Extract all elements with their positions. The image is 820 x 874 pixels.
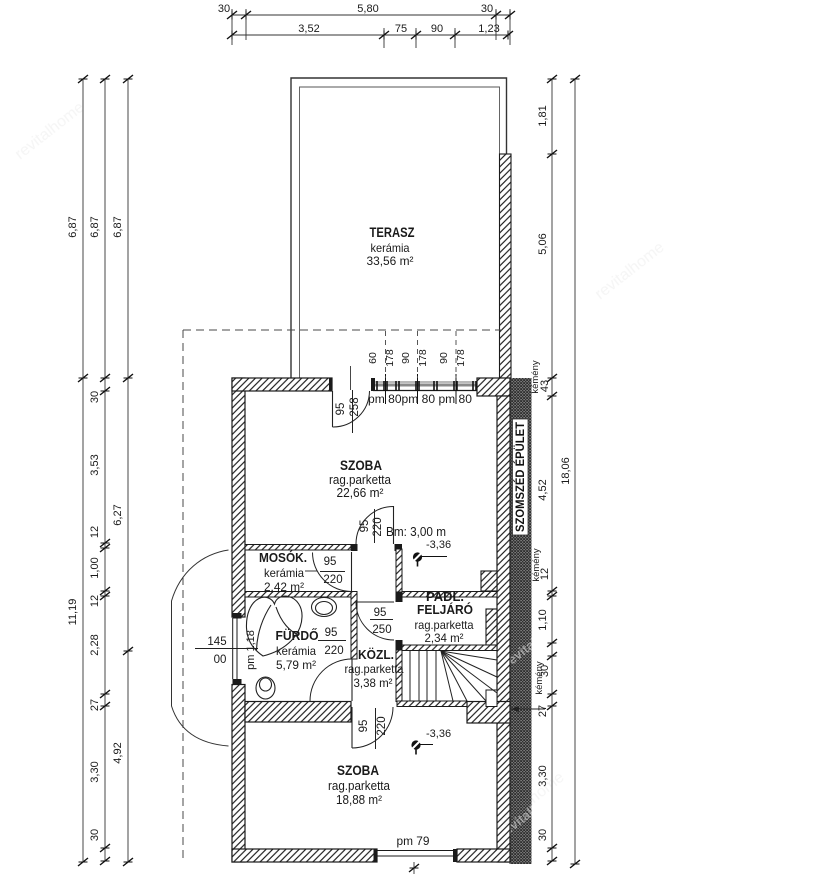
svg-text:95: 95 bbox=[358, 720, 370, 733]
svg-text:95: 95 bbox=[359, 520, 371, 533]
svg-text:60: 60 bbox=[367, 352, 379, 364]
svg-text:1,00: 1,00 bbox=[89, 557, 101, 578]
svg-text:95: 95 bbox=[325, 627, 338, 639]
svg-text:kémény: kémény bbox=[530, 360, 541, 394]
svg-text:90: 90 bbox=[400, 352, 412, 364]
svg-text:95: 95 bbox=[335, 403, 347, 416]
svg-text:30: 30 bbox=[537, 829, 549, 841]
svg-text:3,52: 3,52 bbox=[298, 23, 319, 35]
svg-text:258: 258 bbox=[349, 397, 361, 416]
svg-text:75: 75 bbox=[395, 23, 407, 35]
svg-text:30: 30 bbox=[89, 829, 101, 841]
svg-text:SZOMSZÉD ÉPÜLET: SZOMSZÉD ÉPÜLET bbox=[514, 422, 527, 532]
svg-text:11,19: 11,19 bbox=[67, 599, 79, 626]
svg-text:5,06: 5,06 bbox=[537, 233, 549, 254]
svg-text:22,66 m²: 22,66 m² bbox=[337, 486, 384, 500]
svg-text:178: 178 bbox=[384, 349, 396, 367]
svg-text:220: 220 bbox=[324, 645, 343, 657]
svg-text:6,87: 6,87 bbox=[89, 216, 101, 237]
svg-text:-3,36: -3,36 bbox=[426, 728, 451, 740]
svg-text:FELJÁRÓ: FELJÁRÓ bbox=[417, 602, 473, 617]
svg-text:178: 178 bbox=[455, 349, 467, 367]
svg-text:30: 30 bbox=[218, 3, 230, 15]
svg-text:2,34 m²: 2,34 m² bbox=[425, 631, 464, 645]
svg-text:90: 90 bbox=[438, 352, 450, 364]
svg-text:KÖZL.: KÖZL. bbox=[358, 647, 394, 662]
svg-text:1,23: 1,23 bbox=[478, 23, 499, 35]
svg-text:178: 178 bbox=[417, 349, 429, 367]
svg-text:TERASZ: TERASZ bbox=[370, 225, 415, 240]
svg-text:-3,36: -3,36 bbox=[426, 539, 451, 551]
svg-text:rag.parketta: rag.parketta bbox=[329, 473, 391, 487]
svg-text:95: 95 bbox=[324, 556, 337, 568]
svg-text:2,42 m²: 2,42 m² bbox=[264, 580, 304, 594]
svg-text:12: 12 bbox=[89, 526, 101, 538]
svg-text:kerámia: kerámia bbox=[276, 644, 316, 658]
svg-text:90: 90 bbox=[431, 23, 443, 35]
svg-text:2,28: 2,28 bbox=[89, 634, 101, 655]
svg-text:SZOBA: SZOBA bbox=[340, 457, 382, 473]
svg-text:220: 220 bbox=[323, 574, 342, 586]
svg-text:3,38 m²: 3,38 m² bbox=[354, 676, 393, 690]
svg-text:3,53: 3,53 bbox=[89, 454, 101, 475]
svg-text:kémény: kémény bbox=[531, 548, 542, 582]
svg-text:pm 80pm 80 pm 80: pm 80pm 80 pm 80 bbox=[368, 394, 472, 406]
svg-text:6,87: 6,87 bbox=[67, 216, 79, 237]
svg-text:250: 250 bbox=[372, 624, 391, 636]
svg-text:12: 12 bbox=[89, 595, 101, 607]
svg-text:1,81: 1,81 bbox=[537, 105, 549, 126]
svg-text:220: 220 bbox=[372, 517, 384, 536]
svg-text:27: 27 bbox=[537, 705, 549, 717]
svg-text:FÜRDŐ: FÜRDŐ bbox=[276, 628, 319, 643]
svg-text:27: 27 bbox=[89, 699, 101, 711]
svg-text:145: 145 bbox=[207, 636, 226, 648]
svg-text:pm 79: pm 79 bbox=[397, 836, 430, 848]
svg-text:6,87: 6,87 bbox=[112, 216, 124, 237]
svg-text:4,52: 4,52 bbox=[537, 479, 549, 500]
svg-text:SZOBA: SZOBA bbox=[337, 762, 379, 778]
svg-text:5,79 m²: 5,79 m² bbox=[276, 658, 316, 672]
svg-text:rag.parketta: rag.parketta bbox=[328, 779, 390, 793]
svg-text:3,30: 3,30 bbox=[89, 761, 101, 782]
svg-text:95: 95 bbox=[374, 607, 387, 619]
svg-text:4,92: 4,92 bbox=[112, 742, 124, 763]
svg-text:pm 1,18: pm 1,18 bbox=[245, 630, 257, 670]
svg-text:18,88 m²: 18,88 m² bbox=[336, 793, 382, 807]
svg-text:30: 30 bbox=[481, 3, 493, 15]
svg-text:220: 220 bbox=[376, 716, 388, 735]
svg-text:18,06: 18,06 bbox=[560, 457, 572, 485]
svg-text:rag.parketta: rag.parketta bbox=[415, 618, 474, 632]
svg-text:5,80: 5,80 bbox=[357, 3, 378, 15]
svg-text:kerámia: kerámia bbox=[264, 566, 304, 580]
svg-text:MOSÓK.: MOSÓK. bbox=[259, 550, 307, 565]
svg-text:Bm: 3,00 m: Bm: 3,00 m bbox=[386, 525, 446, 539]
svg-text:6,27: 6,27 bbox=[112, 504, 124, 525]
svg-text:kerámia: kerámia bbox=[371, 241, 410, 255]
svg-text:1,10: 1,10 bbox=[537, 609, 549, 630]
svg-text:30: 30 bbox=[89, 391, 101, 403]
svg-text:kémény: kémény bbox=[534, 661, 545, 695]
svg-text:rag.parketta: rag.parketta bbox=[345, 662, 404, 676]
svg-text:00: 00 bbox=[214, 654, 227, 666]
svg-text:33,56 m²: 33,56 m² bbox=[367, 254, 414, 268]
